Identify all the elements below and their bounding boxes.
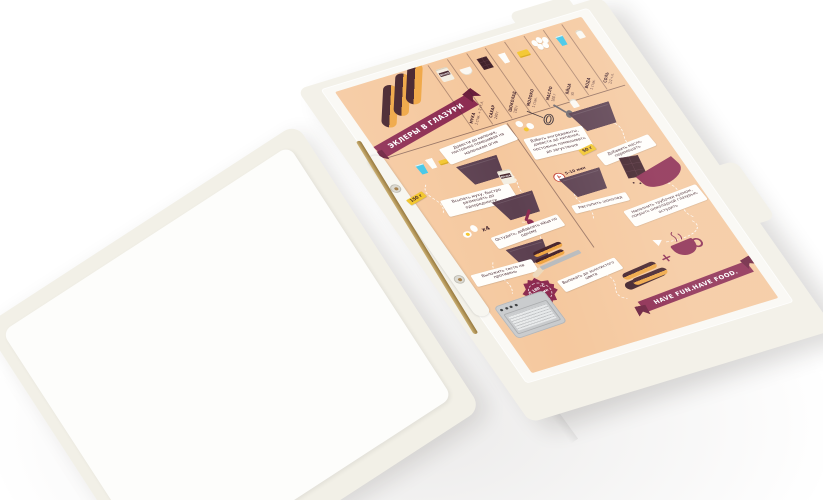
product-photo-open-folder: ЭКЛЕРЫ В ГЛАЗУРИ МУКА МУКА 1 стак. + 2 с…: [0, 0, 823, 500]
